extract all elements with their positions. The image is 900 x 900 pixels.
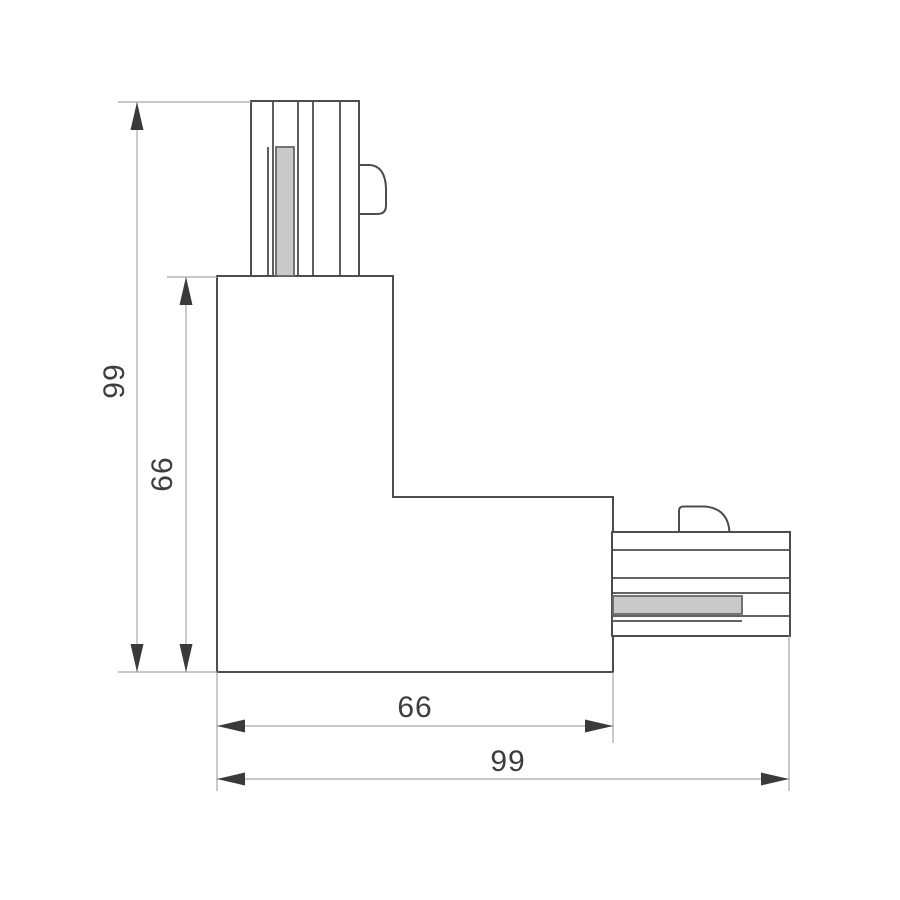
arrow-right-bottom-inner-icon: [585, 720, 613, 733]
dimension-annotations: 99 66 66 99: [98, 102, 789, 791]
arrow-down-left-outer-icon: [131, 644, 144, 672]
right-connector-contact-bar: [613, 596, 742, 614]
arrow-down-left-inner-icon: [180, 644, 193, 672]
arrow-left-bottom-outer-icon: [217, 773, 245, 786]
arrow-up-left-outer-icon: [131, 102, 144, 130]
arrow-up-left-inner-icon: [180, 277, 193, 305]
dimension-label-left-outer: 99: [98, 363, 131, 398]
top-connector-contact-bar: [276, 147, 294, 276]
dimension-label-bottom-outer: 99: [490, 745, 525, 778]
part-geometry: [217, 101, 790, 672]
l-body-outline: [217, 276, 613, 672]
dimension-label-left-inner: 66: [146, 456, 179, 491]
right-connector-latch-icon: [679, 507, 730, 533]
dimension-label-bottom-inner: 66: [397, 691, 432, 724]
top-connector-latch-icon: [359, 165, 386, 214]
l-track-connector-drawing: 99 66 66 99: [0, 0, 900, 900]
technical-drawing-canvas: 99 66 66 99: [0, 0, 900, 900]
arrow-left-bottom-inner-icon: [217, 720, 245, 733]
arrow-right-bottom-outer-icon: [761, 773, 789, 786]
